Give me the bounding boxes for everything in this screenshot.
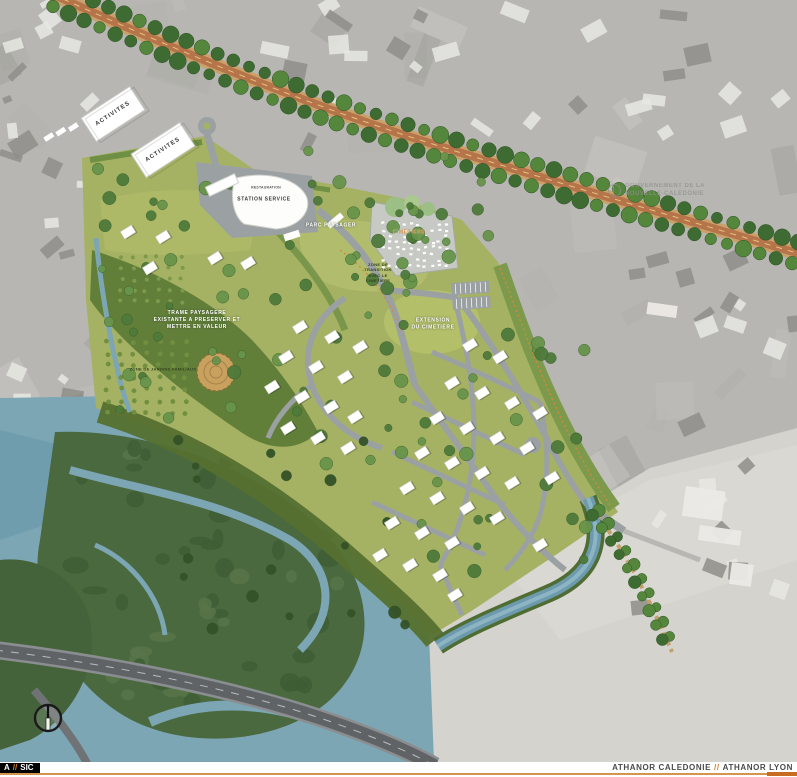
aerial-building (260, 41, 290, 59)
tree-icon (422, 236, 430, 244)
tree-icon (563, 167, 578, 182)
aerial-building (523, 111, 542, 130)
mangrove-clump (140, 448, 151, 461)
tree-icon (606, 203, 619, 216)
orchard-tree-icon (143, 364, 148, 369)
tree-icon (535, 347, 549, 361)
orchard-tree-icon (157, 277, 161, 281)
tree-icon (329, 116, 344, 131)
tomb (403, 223, 406, 225)
aerial-building (657, 124, 674, 141)
tree-icon (432, 126, 449, 143)
tree-icon (395, 210, 402, 217)
tree-icon (660, 196, 676, 212)
footer-orange-rule (0, 773, 797, 775)
tomb (387, 265, 390, 267)
tree-icon (432, 477, 442, 487)
tomb (437, 260, 440, 262)
tree-icon (381, 282, 394, 295)
tree-icon (366, 273, 379, 286)
mangrove-clump (272, 540, 285, 560)
tomb (424, 246, 427, 249)
tree-icon (154, 46, 170, 62)
tomb (438, 229, 441, 231)
tree-icon (129, 328, 137, 336)
texture-patch (518, 266, 560, 311)
aerial-building (787, 315, 797, 332)
tree-icon (387, 220, 400, 233)
tree-icon (378, 133, 391, 146)
tree-icon (180, 573, 188, 581)
orchard-tree-icon (143, 340, 148, 345)
tomb (423, 252, 426, 255)
tomb (416, 264, 419, 267)
aerial-building (660, 9, 688, 21)
orchard-tree-icon (131, 255, 135, 259)
tree-icon (272, 71, 289, 88)
tree-icon (238, 288, 249, 299)
orchard-tree-icon (171, 374, 176, 379)
tree-icon (410, 143, 425, 158)
tree-icon (571, 433, 581, 443)
tree-icon (644, 191, 660, 207)
tree-icon (403, 289, 410, 296)
tree-icon (420, 417, 431, 428)
author-credit-right: ATHANOR CALEDONIE // ATHANOR LYON (612, 762, 793, 772)
tree-icon (621, 207, 637, 223)
tree-icon (325, 474, 337, 486)
tree-icon (436, 208, 448, 220)
orchard-tree-icon (121, 277, 125, 281)
tomb (445, 223, 448, 225)
tree-icon (194, 40, 209, 55)
tree-icon (162, 26, 179, 43)
tree-icon (590, 199, 603, 212)
tree-icon (300, 279, 312, 291)
tree-icon (218, 74, 231, 87)
tree-icon (469, 374, 478, 383)
tree-icon (407, 202, 414, 209)
orchard-tree-icon (170, 340, 175, 345)
orchard-tree-icon (184, 352, 189, 357)
tree-icon (193, 475, 200, 482)
tree-icon (308, 180, 316, 188)
tree-icon (394, 374, 408, 388)
tree-icon (47, 0, 60, 13)
tree-icon (442, 250, 456, 264)
tree-icon (217, 291, 229, 303)
aerial-building (7, 123, 18, 139)
tree-icon (243, 61, 254, 72)
tree-icon (442, 238, 450, 246)
tree-icon (298, 105, 312, 119)
orchard-tree-icon (171, 386, 176, 391)
tree-icon (288, 77, 304, 93)
orchard-tree-icon (132, 266, 136, 270)
tree-icon (509, 174, 522, 187)
tree-icon (313, 110, 329, 126)
tree-icon (347, 123, 359, 135)
tree-icon (225, 402, 236, 413)
orchard-tree-icon (132, 410, 137, 415)
tree-icon (380, 341, 394, 355)
tree-icon (94, 22, 106, 34)
orchard-tree-icon (156, 362, 161, 367)
tree-icon (150, 198, 158, 206)
tree-icon (347, 609, 355, 617)
aerial-building (44, 217, 59, 228)
tree-icon (578, 344, 590, 356)
tree-icon (286, 612, 294, 620)
tree-icon (397, 257, 409, 269)
aerial-building (683, 43, 712, 67)
tree-icon (153, 332, 162, 341)
orchard-tree-icon (156, 412, 161, 417)
tree-icon (370, 108, 382, 120)
mangrove-clump (126, 491, 144, 507)
tree-icon (117, 174, 129, 186)
mangrove-clump (286, 570, 297, 583)
orchard-tree-icon (158, 374, 163, 379)
mangrove-clump (189, 537, 211, 546)
mangrove-clump (131, 648, 144, 657)
tree-icon (133, 14, 147, 28)
tree-icon (672, 223, 685, 236)
aerial-building (470, 118, 494, 137)
tree-icon (116, 405, 124, 413)
tree-icon (385, 424, 392, 431)
mangrove-clump (116, 594, 129, 611)
tree-icon (140, 377, 151, 388)
tree-icon (628, 576, 641, 589)
tomb (438, 224, 441, 226)
tree-icon (401, 117, 416, 132)
orchard-tree-icon (154, 254, 158, 258)
tree-icon (280, 97, 297, 114)
tree-icon (146, 211, 156, 221)
aerial-building (580, 18, 607, 42)
tomb (445, 230, 448, 232)
masterplan-sheet: ACTIVITES ACTIVITES RESTAURATION STATION… (0, 0, 797, 777)
orchard-tree-icon (183, 362, 188, 367)
mangrove-clump (82, 586, 107, 594)
tree-icon (227, 54, 240, 67)
aerial-building (344, 51, 367, 62)
orchard-tree-icon (179, 277, 183, 281)
tree-icon (474, 515, 483, 524)
tomb (396, 246, 399, 248)
orchard-tree-icon (106, 362, 111, 367)
tree-icon (101, 0, 115, 14)
tree-icon (401, 270, 411, 280)
tomb (444, 265, 447, 267)
tomb (430, 230, 433, 232)
tree-icon (285, 240, 294, 249)
tree-icon (467, 139, 479, 151)
north-compass-icon (35, 705, 61, 731)
orchard-tree-icon (180, 301, 184, 305)
tree-icon (758, 224, 774, 240)
footer-right-separator: // (714, 763, 720, 772)
tree-icon (166, 302, 173, 309)
tree-icon (60, 5, 77, 22)
mangrove-clump (121, 690, 135, 701)
tree-icon (459, 447, 473, 461)
tree-icon (173, 435, 183, 445)
orchard-tree-icon (119, 266, 123, 270)
orchard-tree-icon (156, 299, 160, 303)
tree-icon (605, 536, 616, 547)
tree-icon (345, 254, 356, 265)
orchard-tree-icon (181, 266, 185, 270)
tree-icon (612, 182, 625, 195)
tree-icon (233, 80, 248, 95)
tree-icon (336, 95, 352, 111)
tree-icon (643, 604, 656, 617)
tree-icon (688, 227, 702, 241)
tree-icon (458, 389, 469, 400)
tree-icon (399, 320, 409, 330)
orchard-tree-icon (104, 388, 109, 393)
tree-icon (246, 590, 258, 602)
tree-icon (281, 470, 291, 480)
tree-icon (259, 67, 271, 79)
orchard-tree-icon (168, 277, 172, 281)
orchard-tree-icon (145, 299, 149, 303)
tree-icon (472, 204, 484, 216)
orchard-tree-icon (144, 400, 149, 405)
orchard-tree-icon (171, 363, 176, 368)
tree-icon (572, 192, 589, 209)
orchard-tree-icon (106, 399, 111, 404)
tree-icon (399, 395, 407, 403)
tree-icon (497, 146, 514, 163)
tree-icon (491, 168, 507, 184)
tree-icon (204, 69, 215, 80)
tree-icon (212, 357, 220, 365)
tree-icon (227, 365, 241, 379)
mangrove-clump (218, 617, 230, 626)
orchard-tree-icon (143, 410, 148, 415)
tree-icon (123, 368, 136, 381)
aerial-building (59, 36, 82, 54)
tree-icon (158, 200, 168, 210)
tree-icon (474, 543, 481, 550)
tree-icon (546, 161, 562, 177)
tomb (423, 260, 426, 262)
tree-icon (501, 328, 514, 341)
orchard-tree-icon (168, 288, 172, 292)
tree-icon (721, 238, 732, 249)
footer-right-name1: ATHANOR CALEDONIE (612, 763, 711, 772)
orchard-tree-icon (184, 399, 189, 404)
orchard-tree-icon (106, 375, 111, 380)
tree-icon (551, 440, 564, 453)
tree-icon (359, 437, 368, 446)
tree-icon (579, 555, 588, 564)
tree-icon (475, 163, 490, 178)
orchard-tree-icon (157, 288, 161, 292)
mangrove-clump (212, 529, 223, 549)
orchard-tree-icon (131, 363, 136, 368)
orchard-tree-icon (119, 386, 124, 391)
orchard-tree-icon (180, 255, 184, 259)
tree-icon (99, 219, 111, 231)
footer-bar: A // SIC ATHANOR CALEDONIE // ATHANOR LY… (0, 762, 797, 777)
footer-left-prefix: A (4, 763, 10, 772)
aerial-building (59, 249, 75, 260)
tomb (436, 240, 439, 242)
orchard-tree-icon (119, 255, 123, 259)
aerial-building (663, 68, 686, 81)
tree-icon (566, 513, 578, 525)
tree-icon (267, 94, 279, 106)
tree-icon (179, 33, 194, 48)
tree-icon (365, 312, 372, 319)
tree-icon (596, 522, 607, 533)
tree-icon (769, 251, 783, 265)
orchard-tree-icon (117, 352, 122, 357)
tree-icon (238, 351, 246, 359)
orchard-tree-icon (118, 288, 122, 292)
tree-icon (125, 35, 137, 47)
tree-icon (103, 191, 116, 204)
tree-icon (207, 623, 219, 635)
footer-orange-cap (767, 772, 797, 776)
orchard-tree-icon (106, 352, 111, 357)
tree-icon (655, 217, 669, 231)
tree-icon (444, 445, 455, 456)
tomb (409, 253, 412, 256)
footer-right-name2: ATHANOR LYON (723, 763, 793, 772)
tree-icon (341, 542, 349, 550)
tomb (432, 242, 435, 244)
aerial-building (718, 81, 742, 105)
tree-icon (183, 553, 193, 563)
tree-icon (148, 20, 163, 35)
tree-icon (179, 220, 190, 231)
orchard-tree-icon (131, 340, 136, 345)
texture-patch (771, 145, 797, 196)
mangrove-clump (127, 440, 141, 457)
orchard-tree-icon (132, 279, 136, 283)
tree-icon (513, 152, 529, 168)
tree-icon (187, 61, 200, 74)
tree-icon (678, 201, 692, 215)
tree-icon (419, 124, 430, 135)
tree-icon (351, 273, 359, 281)
tomb (403, 241, 406, 244)
tree-icon (555, 187, 572, 204)
mangrove-clump (126, 464, 142, 472)
tree-icon (448, 132, 464, 148)
masterplan-map (0, 0, 797, 762)
tree-icon (774, 229, 791, 246)
tree-icon (622, 563, 632, 573)
aerial-building (2, 95, 12, 104)
tree-icon (656, 634, 668, 646)
tree-icon (211, 47, 224, 60)
orchard-tree-icon (133, 298, 137, 302)
tree-icon (541, 184, 555, 198)
aerial-building (723, 315, 747, 334)
tree-icon (694, 206, 708, 220)
aerial-building (682, 486, 726, 521)
tree-icon (753, 247, 766, 260)
orchard-tree-icon (182, 375, 187, 380)
tree-icon (108, 27, 123, 42)
tree-icon (98, 265, 106, 273)
tree-icon (388, 606, 401, 619)
tree-icon (727, 216, 740, 229)
tree-icon (477, 178, 486, 187)
orchard-tree-icon (184, 339, 189, 344)
tree-icon (322, 91, 334, 103)
tree-icon (116, 6, 133, 23)
aerial-building (675, 267, 695, 287)
tree-icon (637, 592, 647, 602)
tree-icon (638, 212, 653, 227)
tree-icon (427, 550, 440, 563)
tree-icon (743, 221, 755, 233)
tree-icon (209, 348, 217, 356)
tomb (403, 230, 406, 232)
tree-icon (366, 455, 376, 465)
tree-icon (482, 143, 497, 158)
tree-icon (163, 412, 174, 423)
tree-icon (510, 413, 522, 425)
tree-icon (365, 198, 375, 208)
orchard-tree-icon (104, 339, 109, 344)
tree-icon (266, 564, 276, 574)
tree-icon (580, 172, 594, 186)
mangrove-clump (62, 557, 88, 574)
orchard-tree-icon (145, 278, 149, 282)
orchard-tree-icon (132, 388, 137, 393)
tree-icon (164, 253, 177, 266)
tree-icon (651, 620, 662, 631)
aerial-building (628, 267, 645, 280)
tree-icon (735, 240, 752, 257)
tree-icon (124, 286, 133, 295)
orchard-tree-icon (144, 350, 149, 355)
tree-icon (223, 264, 236, 277)
orchard-tree-icon (118, 339, 123, 344)
tree-icon (169, 53, 186, 70)
orchard-tree-icon (144, 254, 148, 258)
aerial-building (646, 251, 670, 268)
footer-left-separator: // (13, 763, 17, 772)
tree-icon (483, 230, 494, 241)
tree-icon (467, 564, 481, 578)
tree-icon (77, 13, 92, 28)
tree-icon (347, 207, 359, 219)
orchard-tree-icon (158, 387, 163, 392)
orchard-tree-icon (182, 387, 187, 392)
tree-icon (192, 463, 199, 470)
tomb (422, 265, 425, 267)
aerial-building (646, 302, 677, 318)
tree-icon (460, 159, 473, 172)
aerial-building (770, 89, 790, 109)
tree-icon (418, 437, 426, 445)
aerial-building (500, 1, 530, 24)
tree-icon (378, 365, 390, 377)
footer-left-name: SIC (20, 763, 33, 772)
orchard-tree-icon (119, 362, 124, 367)
tree-icon (579, 520, 592, 533)
tree-icon (140, 41, 154, 55)
